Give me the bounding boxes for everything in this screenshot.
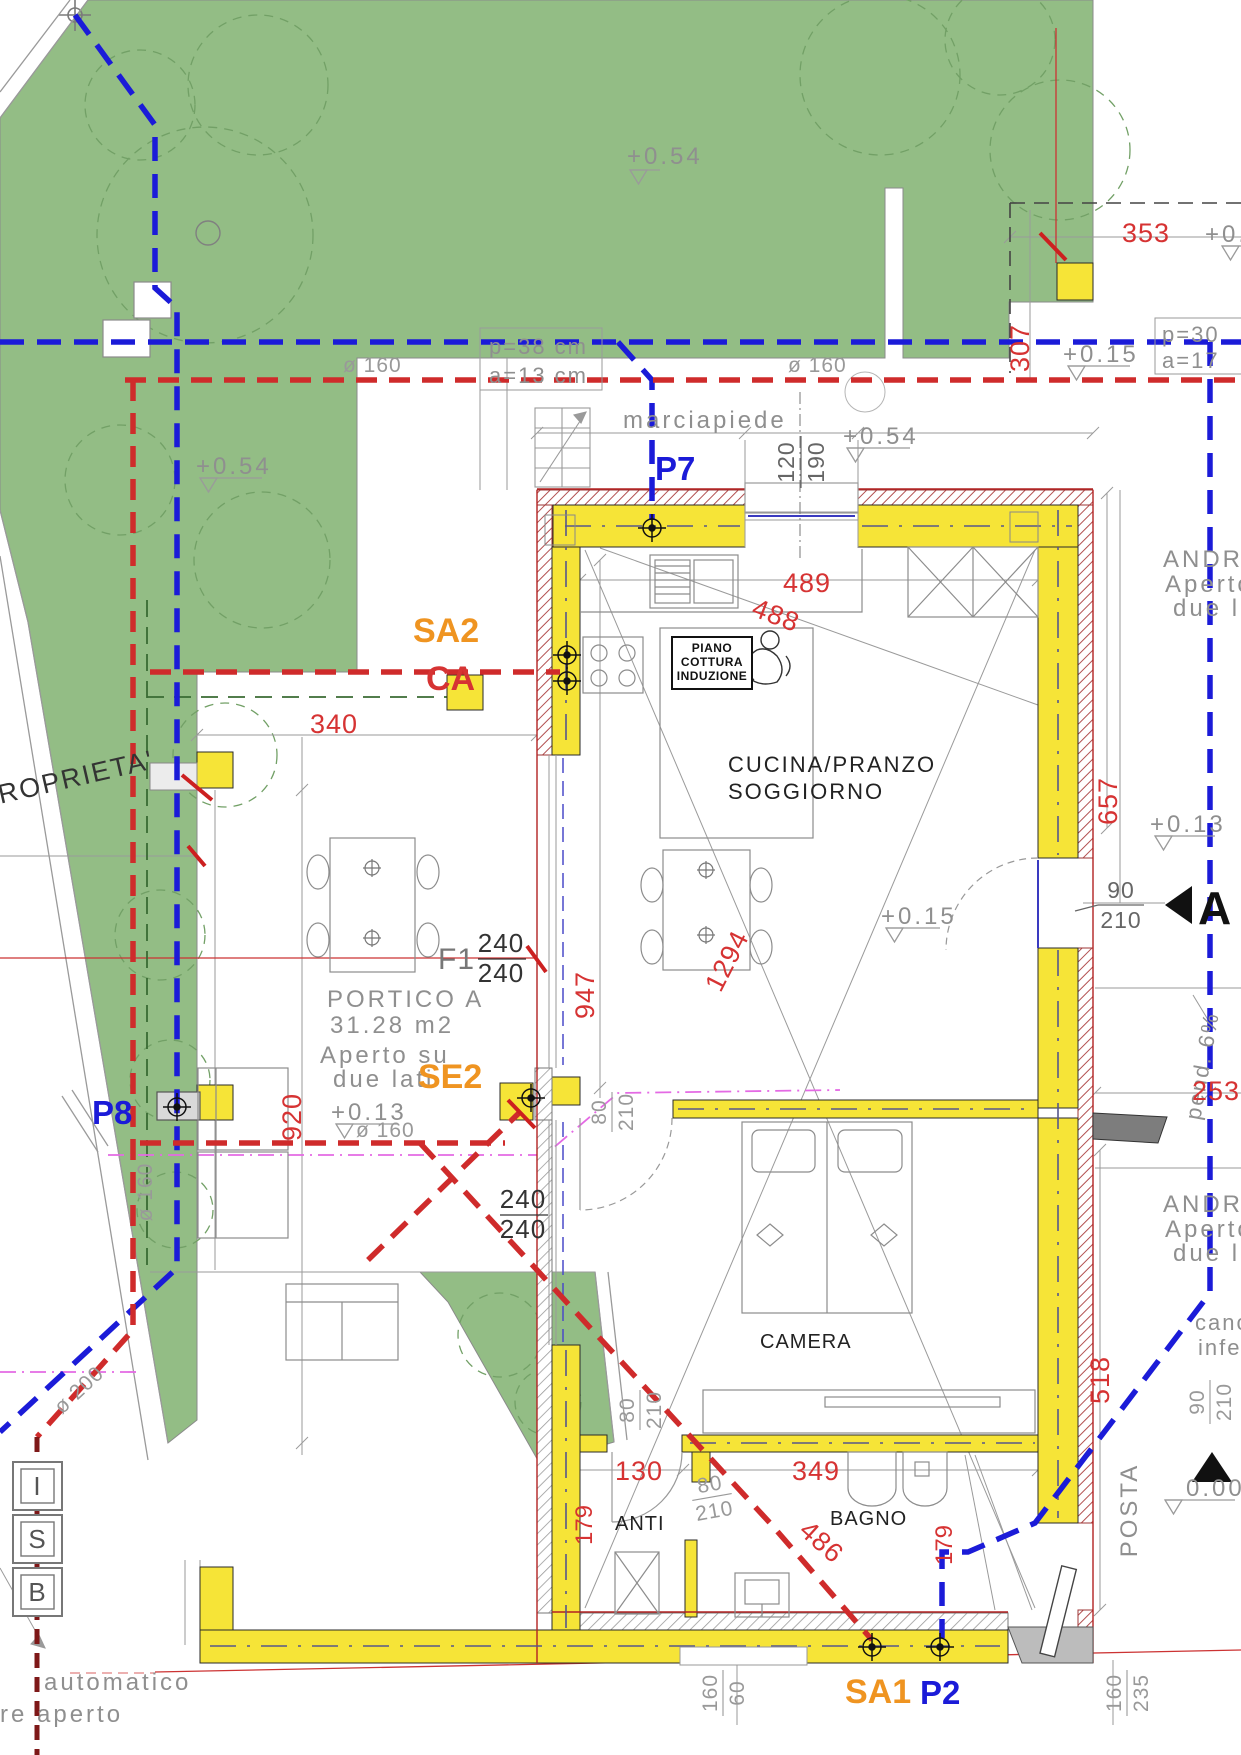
exterior-stairs — [535, 408, 590, 487]
room-bagno: BAGNO — [830, 1508, 907, 1530]
note-infer: infer — [1198, 1335, 1241, 1360]
marker-b: B — [28, 1577, 45, 1607]
dim-657: 657 — [1093, 777, 1123, 825]
elev-013-right: +0.13 — [1150, 811, 1226, 838]
room-anti: ANTI — [615, 1513, 665, 1535]
svg-text:60: 60 — [726, 1680, 749, 1705]
note-automatico: automatico — [44, 1669, 191, 1696]
marker-i: I — [33, 1471, 40, 1501]
elev-000: 0.00 — [1186, 1475, 1241, 1502]
pipe-d200: ø 200 — [50, 1362, 109, 1419]
cooktop-label-1: PIANO — [692, 641, 733, 655]
dim-1294: 1294 — [699, 926, 755, 997]
svg-text:240: 240 — [478, 958, 524, 988]
androne-label-2: ANDRONE — [1163, 1191, 1241, 1218]
cooktop-label-2: COTTURA — [681, 655, 743, 669]
section-letter-a: A — [1198, 882, 1231, 934]
label-ca: CA — [426, 660, 475, 698]
dim-307: 307 — [1005, 324, 1035, 372]
svg-text:80: 80 — [695, 1471, 724, 1498]
svg-text:90: 90 — [1186, 1389, 1209, 1414]
frac-240-240-2: 240 240 — [500, 1184, 548, 1244]
frac-90-210-door: 90 210 — [1075, 877, 1144, 933]
door-90-210 — [946, 858, 1038, 950]
label-f1: F1 — [438, 943, 475, 976]
portico-area: 31.28 m2 — [330, 1012, 454, 1039]
svg-text:210: 210 — [694, 1497, 735, 1526]
room-camera: CAMERA — [760, 1331, 852, 1353]
floor-plan-canvas: marciapiede p=38 cm a=13 cm p=30 a=17 +0… — [0, 0, 1241, 1755]
frac-80-210-camera: 80 210 — [616, 1390, 666, 1430]
svg-text:80: 80 — [588, 1099, 611, 1124]
elev-015-kitchen: +0.15 — [881, 903, 957, 930]
svg-text:240: 240 — [478, 928, 524, 958]
elev-054-mid: +0.54 — [843, 423, 919, 450]
svg-text:120: 120 — [773, 441, 799, 482]
elev-015-topright: +0.15 — [1063, 341, 1139, 368]
label-p8: P8 — [92, 1094, 132, 1131]
svg-text:190: 190 — [803, 441, 829, 482]
pipe-d160-3: ø 160 — [356, 1119, 415, 1142]
dim-518: 518 — [1085, 1356, 1115, 1404]
frac-120-190: 120 190 — [773, 436, 829, 488]
floor-plan: marciapiede p=38 cm a=13 cm p=30 a=17 +0… — [0, 0, 1241, 1755]
room-kitchen-1: CUCINA/PRANZO — [728, 752, 936, 777]
pipe-note-a13: a=13 cm — [489, 363, 588, 388]
dim-349: 349 — [792, 1456, 840, 1486]
marciapiede-label: marciapiede — [623, 407, 787, 434]
androne-note-2a: Aperto — [1165, 1216, 1241, 1243]
pipe-note-a17: a=17 — [1162, 348, 1220, 373]
portico-title: PORTICO A — [327, 986, 484, 1013]
dim-179-anti: 179 — [571, 1505, 598, 1545]
androne-note-2b: due lat — [1173, 1240, 1241, 1267]
dim-130: 130 — [615, 1456, 663, 1486]
label-p2: P2 — [920, 1674, 960, 1711]
section-arrow-a-icon — [1165, 886, 1192, 924]
label-posta: POSTA — [1116, 1463, 1143, 1558]
androne-note-1b: due lat — [1173, 595, 1241, 622]
garden-structure — [103, 320, 150, 357]
label-se2: SE2 — [418, 1058, 482, 1096]
pipe-d160-1: ø 160 — [343, 354, 402, 377]
note-re-aperto: re aperto — [0, 1701, 123, 1728]
note-canc: canc — [1195, 1310, 1241, 1335]
frac-160-60: 160 60 — [699, 1670, 749, 1716]
dim-920: 920 — [277, 1093, 307, 1141]
pipe-d160-4: ø 160 — [134, 1163, 157, 1222]
marker-s: S — [28, 1524, 45, 1554]
androne-note-1a: Aperto — [1165, 571, 1241, 598]
label-sa2: SA2 — [413, 612, 479, 650]
dim-340: 340 — [310, 709, 358, 739]
svg-text:240: 240 — [500, 1214, 546, 1244]
svg-text:90: 90 — [1107, 877, 1135, 903]
svg-text:210: 210 — [615, 1093, 638, 1131]
threshold — [680, 1647, 807, 1665]
elev-04-clipped: +0.4 — [1205, 221, 1241, 248]
svg-text:160: 160 — [699, 1674, 722, 1712]
cooktop-label-3: INDUZIONE — [677, 669, 748, 683]
frac-90-210-posta: 90 210 — [1186, 1380, 1236, 1424]
elev-054-top: +0.54 — [627, 143, 703, 170]
dim-489: 489 — [783, 568, 831, 598]
svg-text:210: 210 — [1100, 907, 1141, 933]
svg-text:210: 210 — [643, 1391, 666, 1429]
frac-240-240-f1: 240 240 — [478, 928, 526, 988]
dim-253: 253 — [1192, 1076, 1240, 1106]
svg-text:80: 80 — [616, 1397, 639, 1422]
pipe-note-p30: p=30 — [1162, 322, 1220, 347]
androne-label-1: ANDRONE — [1163, 546, 1241, 573]
pipe-d160-2: ø 160 — [788, 354, 847, 377]
svg-text:240: 240 — [500, 1184, 546, 1214]
elev-054-left: +0.54 — [196, 453, 272, 480]
dim-488: 488 — [748, 593, 804, 638]
mailbox — [1093, 1113, 1167, 1143]
svg-text:235: 235 — [1130, 1674, 1153, 1712]
frac-80-210-bagno: 80 210 — [688, 1470, 736, 1526]
frac-160-235: 160 235 — [1103, 1670, 1153, 1716]
dim-947: 947 — [570, 971, 600, 1019]
room-kitchen-2: SOGGIORNO — [728, 779, 884, 804]
bed — [742, 1122, 912, 1313]
pipe-note-p38: p=38 cm — [489, 334, 588, 359]
label-p7: P7 — [655, 450, 695, 487]
dim-353: 353 — [1122, 218, 1170, 248]
dim-179-bagno: 179 — [931, 1525, 958, 1565]
pillar-base — [150, 763, 197, 790]
svg-text:160: 160 — [1103, 1674, 1126, 1712]
table-mark — [697, 861, 715, 944]
label-sa1: SA1 — [845, 1673, 911, 1711]
svg-text:210: 210 — [1213, 1383, 1236, 1421]
